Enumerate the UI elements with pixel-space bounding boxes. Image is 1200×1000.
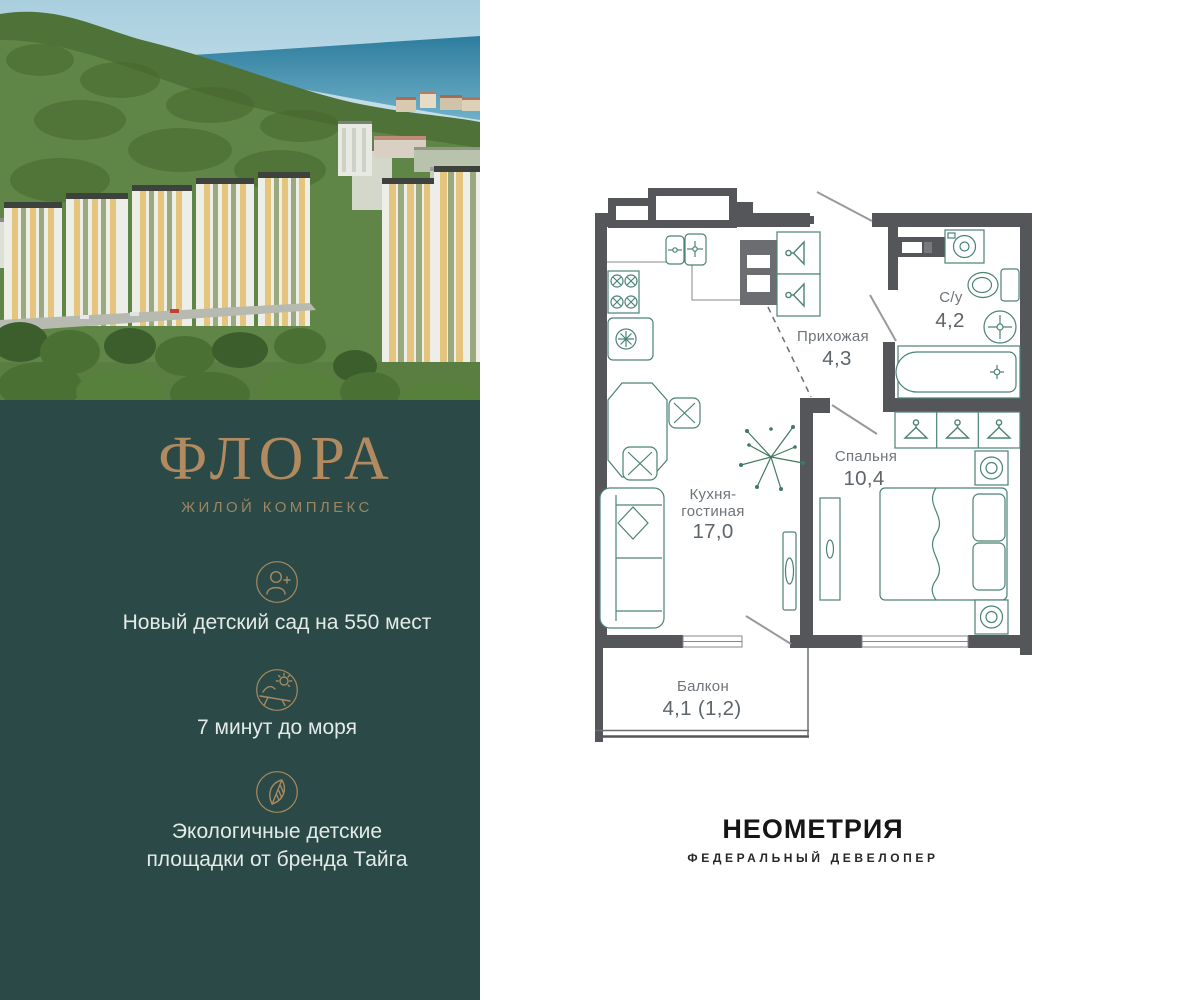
dresser (820, 498, 840, 600)
nightstand (975, 600, 1008, 634)
room-label-bedroom: Спальня (835, 448, 897, 465)
bathroom-door (870, 295, 896, 341)
sun-lounger-icon (74, 668, 480, 712)
bedroom-door (832, 405, 877, 434)
room-area-balcony: 4,1 (1,2) (662, 697, 741, 720)
developer-name: НЕОМЕТРИЯ (593, 814, 1033, 845)
leaf-icon (74, 770, 480, 814)
feature-text-kindergarten: Новый детский сад на 550 мест (74, 609, 480, 637)
room-label-balcony: Балкон (677, 678, 729, 695)
room-area-kitchen-living: 17,0 (692, 520, 733, 543)
room-area-bedroom: 10,4 (843, 467, 884, 490)
boiler (608, 318, 653, 360)
room-label-bathroom: С/у (939, 289, 963, 306)
room-label-kitchen-living-line1: Кухня- (690, 486, 737, 503)
hallway-closet (777, 232, 820, 316)
bed (880, 488, 1007, 600)
washing-machine (945, 230, 984, 263)
room-area-hallway: 4,3 (822, 347, 851, 370)
room-label-hallway: Прихожая (797, 328, 869, 345)
feature-text-sea: 7 минут до моря (74, 714, 480, 742)
floorplan: Кухня- гостиная 17,0 Прихожая 4,3 С/у 4,… (595, 185, 1035, 755)
vent-shaft (740, 240, 777, 305)
sofa (600, 488, 664, 628)
complex-aerial-photo (0, 0, 480, 400)
zone-divider-dashed (768, 307, 811, 397)
room-label-kitchen-living-line2: гостиная (681, 503, 744, 520)
bathtub (896, 346, 1020, 398)
chair (623, 447, 657, 480)
nightstand (975, 451, 1008, 485)
floorplan-svg: Кухня- гостиная 17,0 Прихожая 4,3 С/у 4,… (595, 185, 1035, 755)
brand-subtitle: ЖИЛОЙ КОМПЛЕКС (74, 499, 480, 516)
flyer-page: ФЛОРА ЖИЛОЙ КОМПЛЕКС Новый детский сад н… (0, 0, 1200, 1000)
kitchen-sink (666, 234, 706, 265)
chair (669, 398, 700, 428)
balcony-door (746, 616, 791, 644)
tv-stand (783, 532, 796, 610)
left-panel: ФЛОРА ЖИЛОЙ КОМПЛЕКС Новый детский сад н… (0, 0, 480, 1000)
developer-logo: НЕОМЕТРИЯ ФЕДЕРАЛЬНЫЙ ДЕВЕЛОПЕР (593, 814, 1033, 865)
balcony-outline (595, 648, 809, 742)
person-add-icon (74, 560, 480, 604)
stove (608, 271, 639, 313)
entrance-door (817, 192, 872, 221)
photo-scene-svg (0, 0, 480, 400)
room-area-bathroom: 4,2 (935, 309, 964, 332)
exterior-parapet (612, 192, 753, 224)
toilet (968, 269, 1019, 301)
brand-title: ФЛОРА (74, 424, 480, 494)
washbasin (984, 311, 1016, 343)
wardrobe (895, 412, 1020, 448)
plant (739, 425, 805, 491)
developer-tagline: ФЕДЕРАЛЬНЫЙ ДЕВЕЛОПЕР (593, 851, 1033, 865)
brand-panel: ФЛОРА ЖИЛОЙ КОМПЛЕКС Новый детский сад н… (0, 400, 480, 1000)
feature-text-playgrounds: Экологичные детские площадки от бренда Т… (74, 818, 480, 874)
